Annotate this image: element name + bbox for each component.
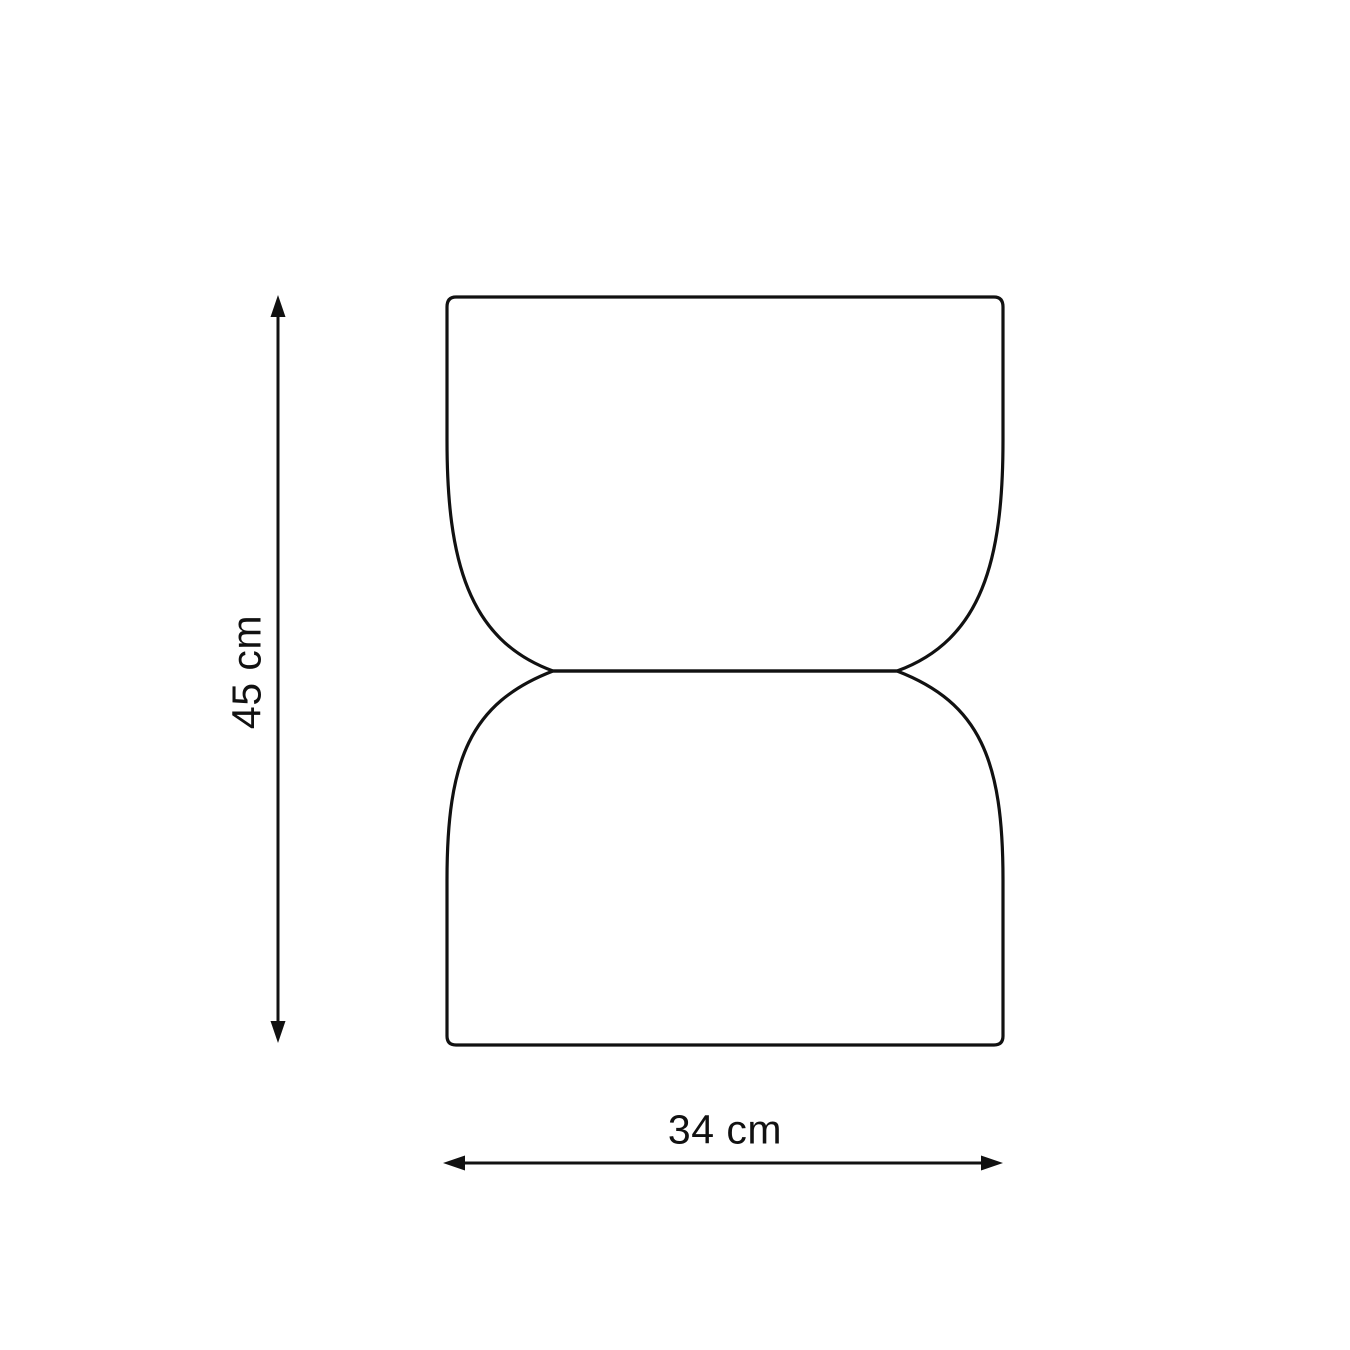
- arrow-up-icon: [271, 295, 286, 317]
- arrow-left-icon: [443, 1156, 465, 1171]
- width-dimension-label: 34 cm: [668, 1110, 782, 1151]
- dimension-diagram-canvas: 45 cm 34 cm: [0, 0, 1350, 1350]
- arrow-down-icon: [271, 1021, 286, 1043]
- stool-bottom-section-outline: [447, 671, 1003, 1045]
- height-dimension-arrow: [271, 295, 286, 1043]
- height-dimension-label: 45 cm: [227, 615, 268, 729]
- stool-top-section-outline: [447, 297, 1003, 671]
- width-dimension-arrow: [443, 1156, 1003, 1171]
- arrow-right-icon: [981, 1156, 1003, 1171]
